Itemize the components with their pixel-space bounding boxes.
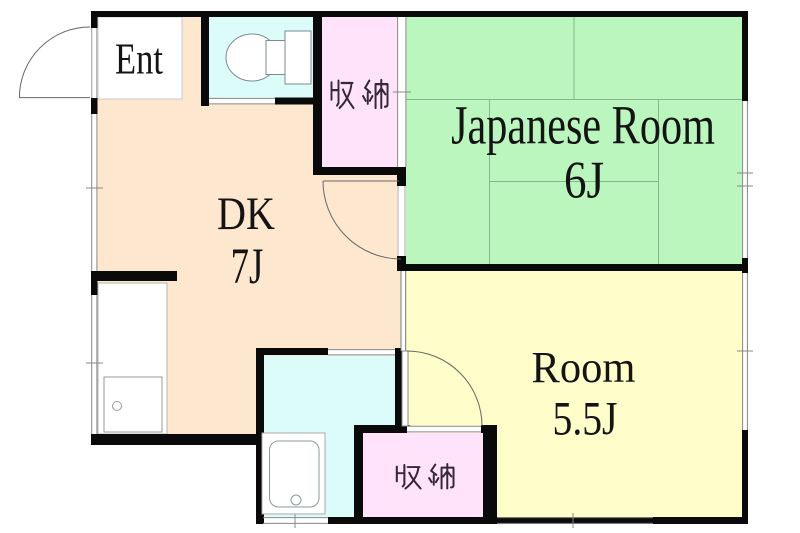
svg-text:5.5J: 5.5J bbox=[553, 392, 618, 445]
svg-text:DK: DK bbox=[217, 188, 275, 240]
svg-text:6J: 6J bbox=[564, 150, 604, 209]
svg-text:Room: Room bbox=[532, 343, 636, 392]
svg-text:Ent: Ent bbox=[115, 35, 163, 84]
svg-text:Japanese Room: Japanese Room bbox=[451, 94, 715, 156]
svg-text:7J: 7J bbox=[231, 237, 264, 294]
